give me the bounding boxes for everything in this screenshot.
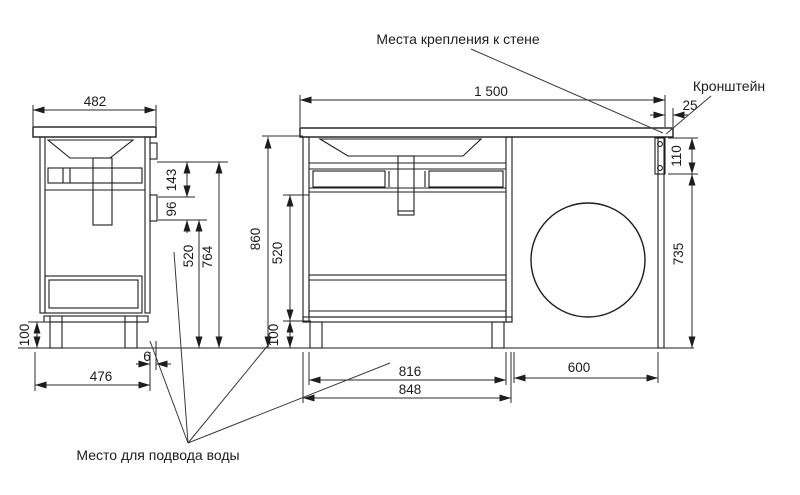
- front-top-drawer-right: [429, 171, 503, 187]
- label-bracket: Кронштейн: [693, 78, 765, 94]
- front-top-drawer-left: [313, 171, 385, 187]
- label-water-supply: Место для подвода воды: [76, 447, 239, 463]
- front-view-cabinet: [300, 128, 673, 348]
- dim-side-cutout-to-floor: 520: [181, 245, 196, 268]
- side-drawer-rail: [48, 168, 142, 183]
- dim-front-bracket-height: 110: [669, 145, 684, 167]
- washing-machine-door: [531, 203, 645, 317]
- dim-side-back-gap: 6: [143, 349, 151, 364]
- side-back-panel: [145, 137, 150, 313]
- label-wall-mount: Места крепления к стене: [376, 31, 540, 47]
- technical-drawing: 482 143 96 520 764 100 476 6: [0, 0, 800, 495]
- front-countertop: [300, 128, 673, 137]
- side-view-cabinet: [33, 127, 157, 348]
- front-right-panel: [506, 137, 512, 322]
- front-end-panel: [658, 137, 664, 348]
- side-view-dimensions: 482 143 96 520 764 100 476 6: [17, 94, 228, 391]
- side-sink-basin: [48, 140, 133, 158]
- side-water-cutout: [150, 195, 157, 221]
- vanity-dimension-drawing: 482 143 96 520 764 100 476 6: [0, 0, 800, 495]
- dim-side-cutout-height: 96: [164, 201, 179, 216]
- dim-front-drawer-zone: 520: [270, 242, 285, 265]
- front-sink-basin: [320, 139, 481, 156]
- side-back-rail-cutout: [150, 143, 157, 159]
- front-left-leg: [310, 322, 322, 348]
- front-drain-pipe: [398, 156, 414, 215]
- front-plinth: [303, 317, 512, 322]
- side-front-panel: [40, 137, 45, 313]
- dim-front-leg-height: 100: [266, 324, 281, 347]
- dim-front-machine-space: 600: [568, 360, 591, 375]
- dim-side-basin-to-cutout: 143: [164, 169, 179, 192]
- dim-front-cabinet-width: 848: [399, 382, 422, 397]
- dim-front-total-height: 860: [248, 228, 263, 251]
- side-countertop: [33, 127, 156, 137]
- dim-side-leg-height: 100: [17, 324, 32, 347]
- front-view-dimensions: 1 500 25 860 520 100 110 735 816: [248, 84, 698, 403]
- dim-front-bracket-to-floor: 735: [671, 243, 686, 266]
- dim-front-total-width: 1 500: [474, 84, 508, 99]
- side-back-leg: [125, 322, 137, 348]
- dim-side-bottom-width: 476: [90, 369, 113, 384]
- dim-front-edge-offset: 25: [682, 98, 697, 113]
- front-left-panel: [303, 137, 309, 322]
- front-right-leg: [492, 322, 504, 348]
- side-front-leg: [50, 322, 62, 348]
- dim-side-top-width: 482: [84, 94, 107, 109]
- dim-side-worktop-to-floor: 764: [200, 245, 215, 268]
- dim-front-opening-width: 816: [399, 364, 422, 379]
- side-plinth: [44, 316, 148, 322]
